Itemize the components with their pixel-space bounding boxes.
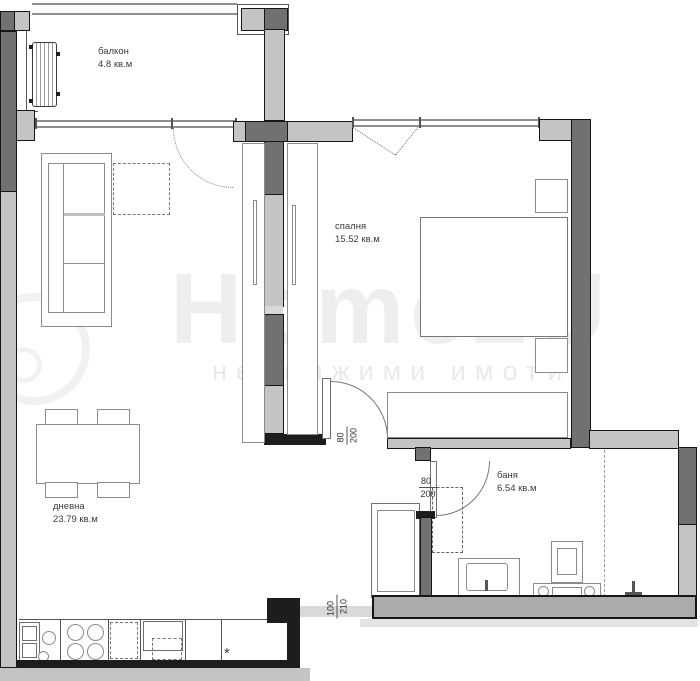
bedroom-window-opening-dots — [395, 127, 418, 156]
room-area: 23.79 кв.м — [53, 514, 98, 525]
wall-kitchen-right-notch — [267, 598, 289, 623]
hall-closet-inner — [377, 510, 415, 592]
bed — [420, 217, 568, 337]
wall-bathroom-door-stub — [415, 447, 431, 461]
living-wardrobe-handle — [253, 200, 257, 285]
room-label-bedroom: спалня 15.52 кв.м — [335, 221, 380, 246]
wall-center-d2 — [264, 314, 284, 386]
dimension-width: 80 — [336, 427, 348, 445]
sofa-cushion-divider — [64, 213, 105, 216]
nightstand — [535, 338, 568, 373]
dimension-bathroom-door: 80 200 — [410, 476, 446, 499]
dishwasher-dashed — [110, 622, 138, 659]
balcony-parapet-line — [32, 3, 237, 5]
kitchen-counter-divider — [60, 620, 61, 661]
room-area: 15.52 кв.м — [335, 234, 380, 245]
wall-bottom-light-band — [0, 668, 310, 681]
wall-left-junction-light — [16, 110, 35, 141]
room-name: дневна — [53, 501, 85, 512]
wall-balcony-left-dark — [0, 11, 15, 31]
sofa-cushion-divider — [64, 263, 105, 264]
wall-center-d1 — [264, 141, 284, 195]
wall-center-l2 — [264, 385, 284, 434]
sofa-seat — [48, 163, 105, 313]
fridge-shelf — [22, 626, 37, 641]
fridge-shelf — [22, 643, 37, 658]
balcony-parapet-line — [32, 13, 237, 15]
room-label-bathroom: баня 6.54 кв.м — [497, 470, 537, 495]
bedroom-door-leaf — [322, 378, 331, 439]
bedroom-window-line — [352, 119, 540, 121]
toilet-drain — [485, 580, 488, 591]
wall-center-l1 — [264, 194, 284, 307]
bedroom-window-line — [352, 125, 540, 127]
living-window-tick — [35, 118, 37, 129]
kitchen-counter-divider — [185, 620, 186, 661]
room-area: 4.8 кв.м — [98, 59, 132, 70]
stove-burner — [67, 643, 84, 660]
kitchen-sink-dashed — [152, 638, 182, 660]
nightstand — [535, 179, 568, 213]
radiator-valve — [56, 52, 60, 56]
room-area: 6.54 кв.м — [497, 483, 537, 494]
wall-bathroom-bottom-shadow — [360, 619, 698, 627]
dimension-width: 80 — [419, 476, 437, 488]
wall-center-upper — [264, 29, 285, 121]
wall-balcony-left-light — [14, 11, 30, 31]
wall-kitchen-right — [287, 598, 300, 668]
wall-left-dark — [0, 31, 17, 192]
sink-bowl — [42, 631, 56, 645]
dining-chair — [45, 482, 78, 498]
dresser — [387, 392, 568, 438]
dimension-kitchen-passage: 100 210 — [326, 588, 349, 626]
room-name: баня — [497, 470, 518, 481]
bedroom-wardrobe — [287, 143, 318, 435]
coffee-table-dashed — [113, 163, 170, 215]
balcony-door-swing-arc — [173, 128, 233, 188]
wall-top-dark-block — [245, 121, 288, 142]
wall-bathroom-top — [589, 430, 679, 449]
radiator-valve — [56, 92, 60, 96]
wall-bedroom-right — [571, 119, 591, 448]
living-wardrobe — [242, 143, 265, 443]
living-window-line — [35, 120, 237, 122]
wall-center-bottom-cap — [264, 434, 326, 445]
stove-burner — [87, 643, 104, 660]
wall-bathroom-bottom — [372, 595, 697, 619]
dimension-height: 210 — [338, 588, 349, 626]
wall-bathroom-right-dark — [678, 447, 697, 526]
dimension-bedroom-door: 80 200 — [336, 419, 359, 453]
wall-kitchen-bottom — [17, 660, 300, 668]
dining-table — [36, 424, 140, 484]
dimension-width: 100 — [326, 595, 338, 618]
wall-balcony-right-dark — [264, 8, 288, 31]
bathroom-shaft-dashed-line — [604, 450, 605, 597]
radiator-valve — [29, 99, 33, 103]
kitchen-counter-divider — [221, 620, 222, 661]
kitchen-counter-divider — [108, 620, 109, 661]
room-name: спалня — [335, 221, 366, 232]
dining-chair — [97, 482, 130, 498]
wall-balcony-right-light — [241, 8, 266, 31]
bedroom-wardrobe-handle — [292, 205, 296, 285]
wall-bathroom-left — [420, 517, 432, 598]
sofa-backrest-line — [63, 163, 64, 313]
wall-bedroom-top-right — [539, 119, 574, 141]
stove-burner — [87, 624, 104, 641]
boiler-inner — [557, 548, 577, 575]
bedroom-window-tick — [419, 117, 421, 128]
balcony-floor-edge — [26, 30, 27, 112]
floorplan-canvas: Home2U недвижими имоти балкон 4.8 кв.м — [0, 0, 700, 681]
room-label-living: дневна 23.79 кв.м — [53, 501, 98, 526]
dimension-height: 200 — [348, 419, 359, 453]
wall-left-light — [0, 191, 17, 668]
room-label-balcony: балкон 4.8 кв.м — [98, 46, 132, 71]
stove-burner — [67, 624, 84, 641]
dimension-height: 200 — [410, 488, 446, 499]
kitchen-counter-divider — [140, 620, 141, 661]
room-name: балкон — [98, 46, 129, 57]
radiator-valve — [29, 45, 33, 49]
bedroom-window-opening-dots — [352, 127, 394, 155]
radiator — [32, 42, 57, 107]
